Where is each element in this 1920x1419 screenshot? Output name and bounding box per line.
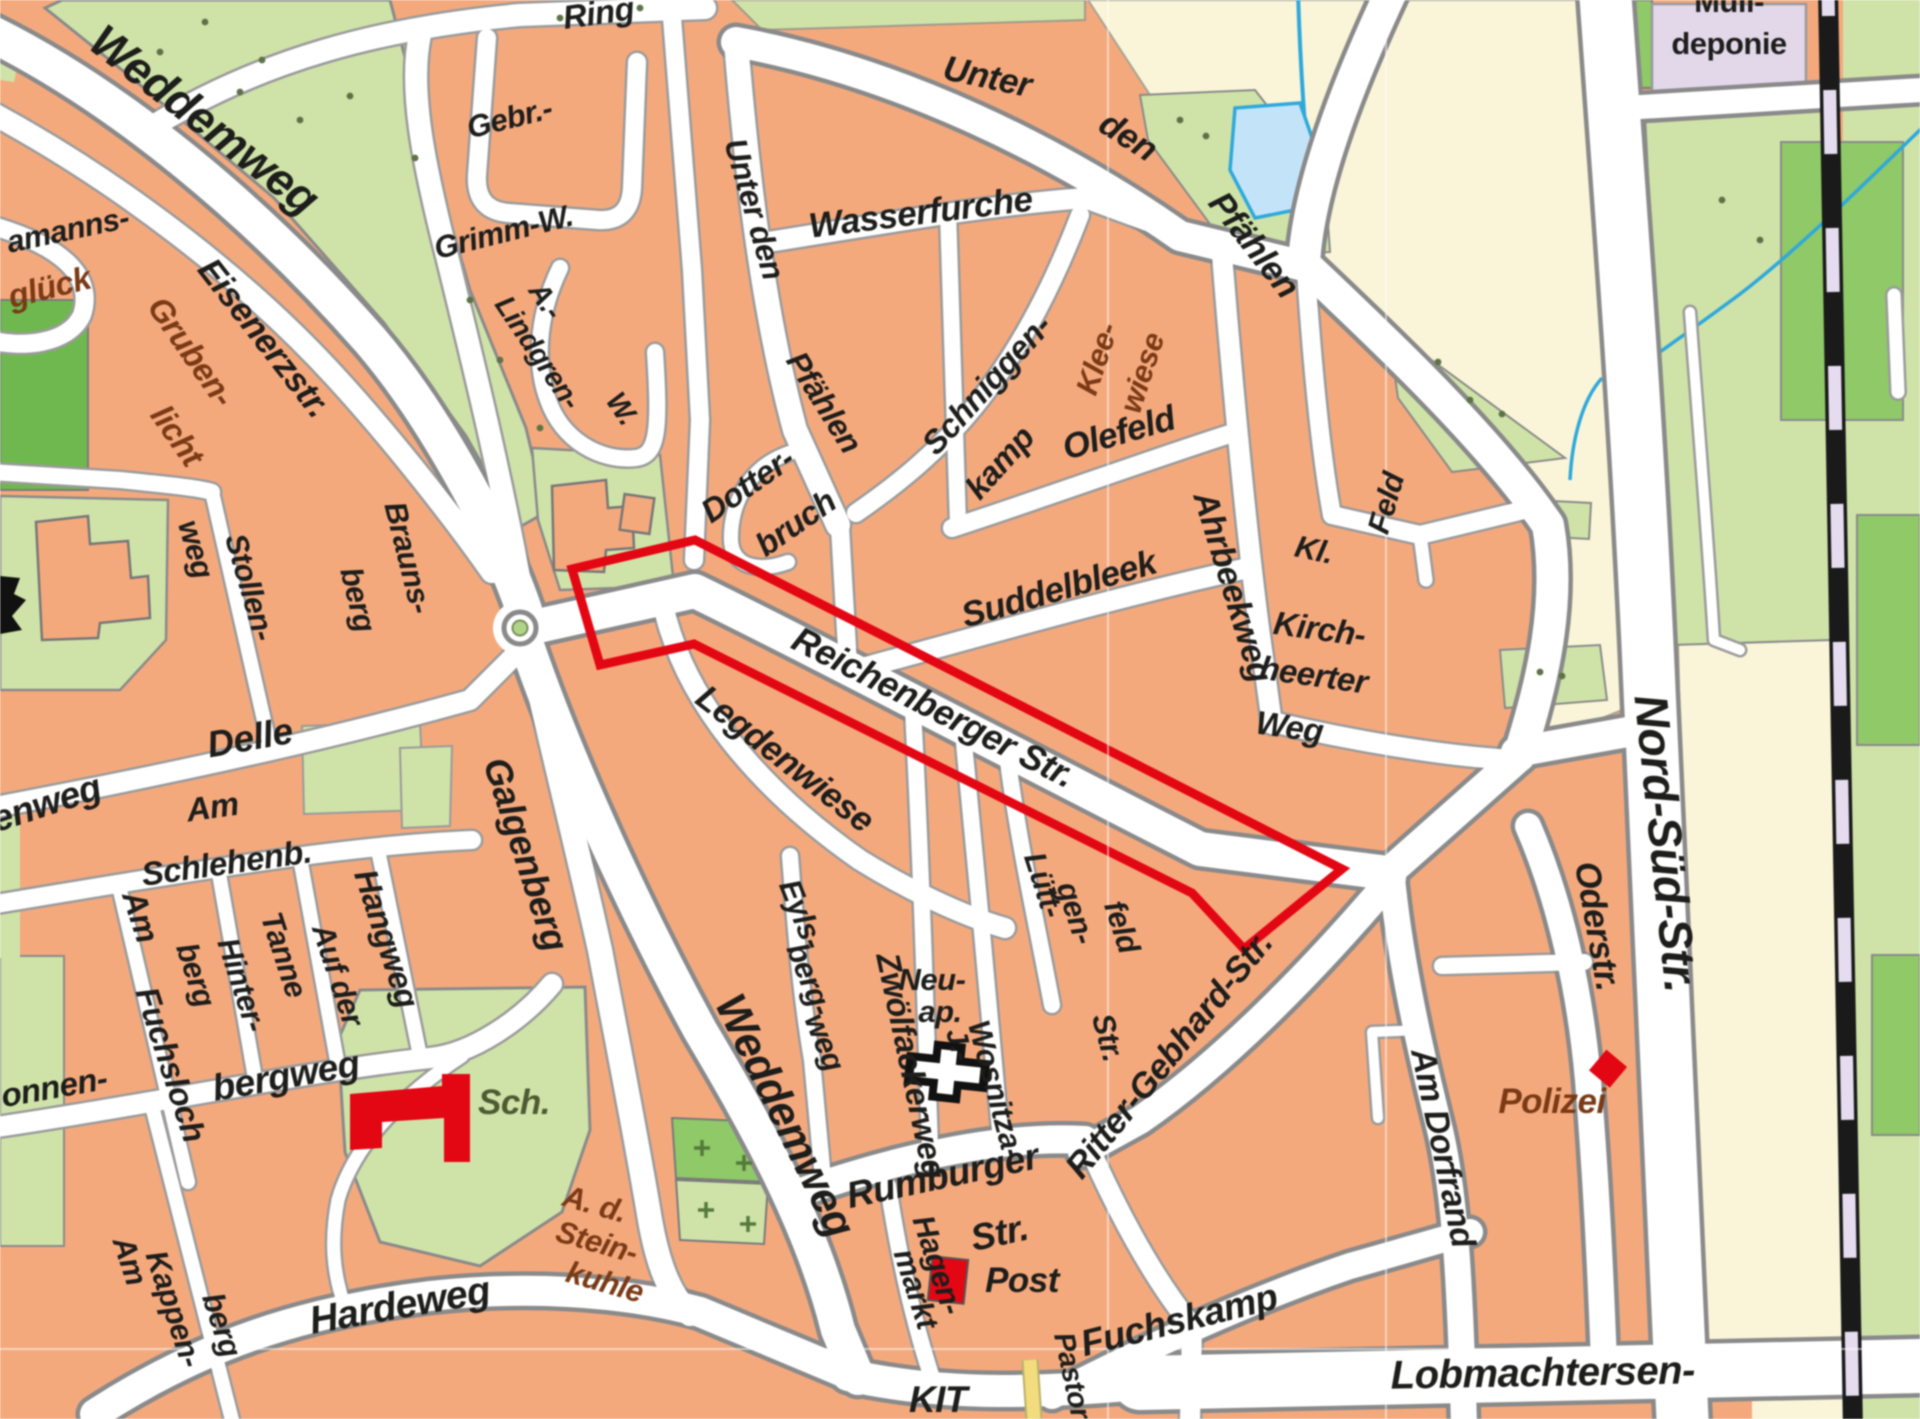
svg-text:Müll-: Müll- [1694,0,1764,19]
svg-text:ap.: ap. [918,994,961,1029]
svg-text:Am: Am [183,785,241,829]
svg-text:Post: Post [985,1261,1061,1300]
svg-text:Neu-: Neu- [899,962,966,997]
svg-text:KIT: KIT [909,1379,971,1419]
svg-text:Polizei: Polizei [1498,1082,1607,1121]
svg-text:deponie: deponie [1671,26,1787,61]
svg-text:Lobmachtersen-: Lobmachtersen- [1390,1348,1695,1397]
svg-text:Sch.: Sch. [478,1083,550,1122]
